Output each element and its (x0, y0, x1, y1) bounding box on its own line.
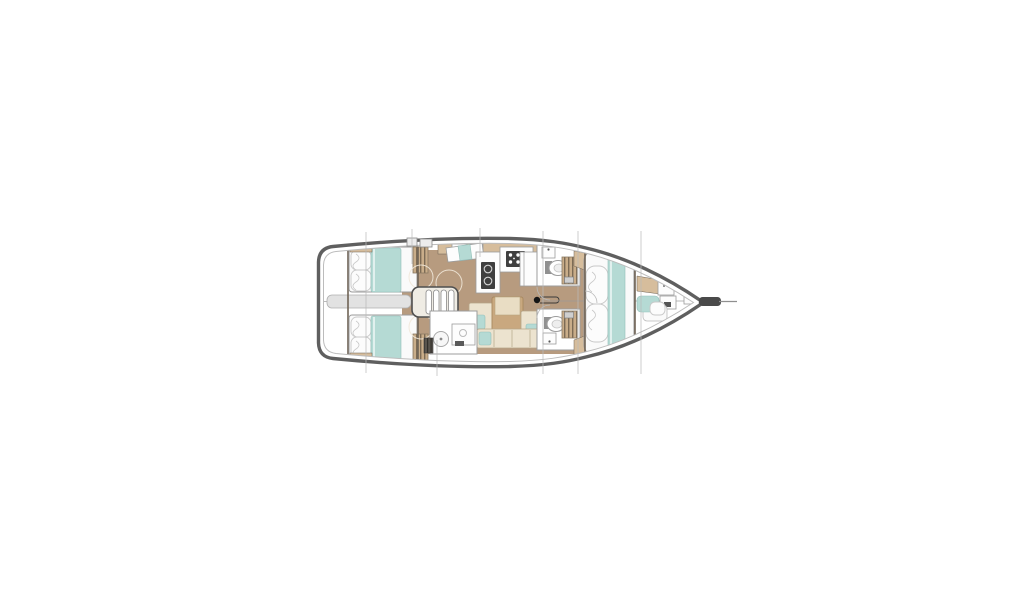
aft-head-faucet (455, 341, 464, 346)
engine-compartment (327, 295, 411, 308)
aft-head (424, 311, 477, 354)
saloon-bench-cushion (479, 332, 491, 345)
yacht-floor-plan (0, 0, 1024, 600)
bowsprit (699, 297, 737, 306)
aft-head-locker (424, 338, 433, 353)
aft-port-wardrobe (413, 247, 428, 273)
bow-berth-pillow (650, 302, 665, 315)
aft-stbd-pillow-1 (351, 317, 371, 337)
aft-cabin-port (349, 244, 428, 292)
aft-stbd-blanket (371, 316, 401, 360)
refrigerator (520, 252, 537, 286)
deck-hatch-2 (420, 239, 432, 247)
nav-seat-cushion (458, 245, 472, 261)
canvas (0, 0, 1024, 600)
aft-port-pillow-1 (351, 250, 371, 270)
saloon-table-top (495, 297, 520, 315)
aft-port-blanket (371, 248, 401, 292)
